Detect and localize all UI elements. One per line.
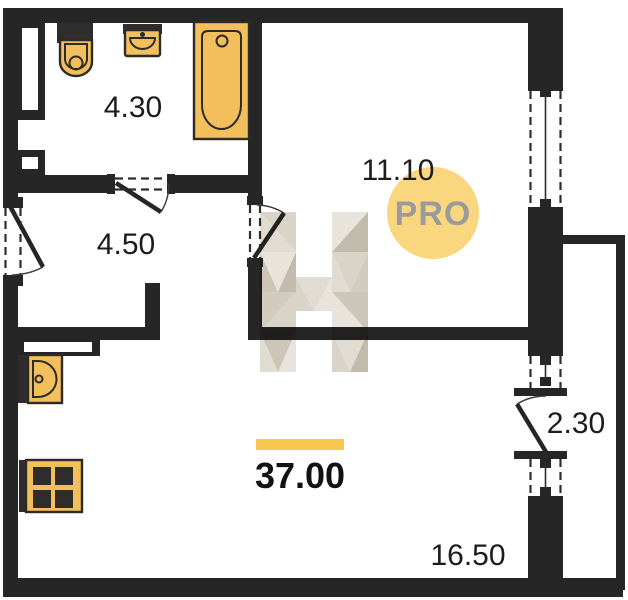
room-label-kitchen-living: 16.50 [430, 539, 505, 572]
room-label-bathroom: 4.30 [104, 91, 162, 124]
balcony-door-arc [517, 396, 546, 404]
washbasin-faucet [140, 32, 145, 37]
entrance-door-leaf [10, 206, 43, 267]
stove-burner [55, 490, 73, 508]
entrance-door-arc [12, 267, 43, 275]
stove-icon [19, 460, 82, 512]
pro-badge-label: PRO [395, 195, 472, 233]
balcony-door-leaf [517, 404, 546, 452]
total-area-accent-bar [256, 439, 344, 450]
bathroom-door-leaf [116, 183, 161, 212]
toilet-icon [57, 23, 93, 76]
room-label-hallway: 4.50 [97, 228, 155, 261]
bathtub-icon [194, 22, 249, 139]
floor-plan-svg: PRO 4.30 4.50 11.10 2.30 16.50 37.00 [0, 0, 628, 600]
room-label-balcony: 2.30 [547, 407, 605, 440]
stove-burner [55, 467, 73, 485]
floor-plan: PRO 4.30 4.50 11.10 2.30 16.50 37.00 [0, 0, 628, 600]
kitchen-sink-icon [18, 355, 62, 403]
stove-burner [33, 490, 51, 508]
total-area: 37.00 [255, 439, 345, 496]
washbasin-icon [123, 24, 162, 56]
stove-burner [33, 467, 51, 485]
h-letter-watermark [260, 212, 368, 372]
room-label-bedroom: 11.10 [362, 154, 435, 187]
kitchen-sink-back [18, 355, 28, 403]
total-area-value: 37.00 [255, 455, 345, 496]
